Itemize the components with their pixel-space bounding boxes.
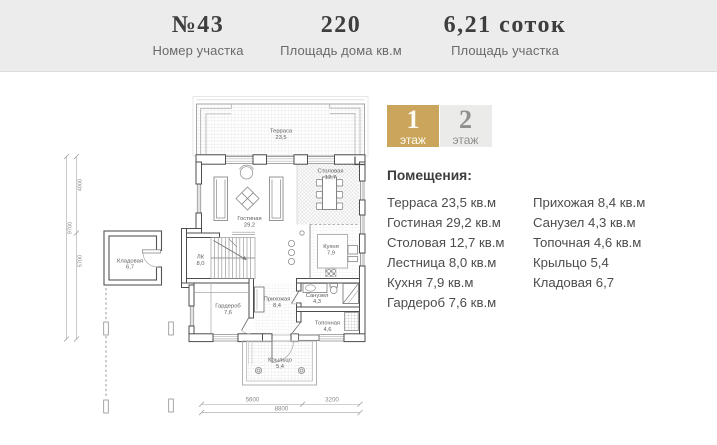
svg-text:8,4: 8,4 <box>273 303 282 309</box>
svg-text:Столовая: Столовая <box>318 169 344 175</box>
svg-text:Прихожая: Прихожая <box>264 297 291 303</box>
svg-text:Гардероб: Гардероб <box>215 304 241 310</box>
svg-text:4000: 4000 <box>78 179 84 191</box>
svg-text:Топочная: Топочная <box>315 321 340 327</box>
svg-text:3200: 3200 <box>325 396 339 403</box>
svg-text:Терраса: Терраса <box>270 129 293 135</box>
svg-text:Кладовая: Кладовая <box>117 258 143 264</box>
svg-text:29,2: 29,2 <box>244 222 255 228</box>
svg-text:5700: 5700 <box>78 255 84 267</box>
svg-text:ЛК: ЛК <box>197 255 205 261</box>
svg-text:4,6: 4,6 <box>323 327 331 333</box>
svg-text:23,5: 23,5 <box>275 135 286 141</box>
svg-text:5,4: 5,4 <box>276 364 285 370</box>
svg-text:8800: 8800 <box>275 406 289 413</box>
svg-text:Крыльцо: Крыльцо <box>268 358 292 364</box>
svg-text:Гостиная: Гостиная <box>237 216 261 222</box>
svg-text:12,7: 12,7 <box>325 175 336 181</box>
svg-text:5600: 5600 <box>246 396 260 403</box>
svg-text:4,3: 4,3 <box>313 299 321 305</box>
svg-text:Санузел: Санузел <box>306 293 329 299</box>
svg-text:7,9: 7,9 <box>327 250 335 256</box>
svg-text:6,7: 6,7 <box>126 265 134 271</box>
svg-text:7,6: 7,6 <box>224 310 232 316</box>
svg-text:9700: 9700 <box>68 222 74 234</box>
svg-text:Кухня: Кухня <box>323 244 339 250</box>
svg-text:8,0: 8,0 <box>196 261 204 267</box>
